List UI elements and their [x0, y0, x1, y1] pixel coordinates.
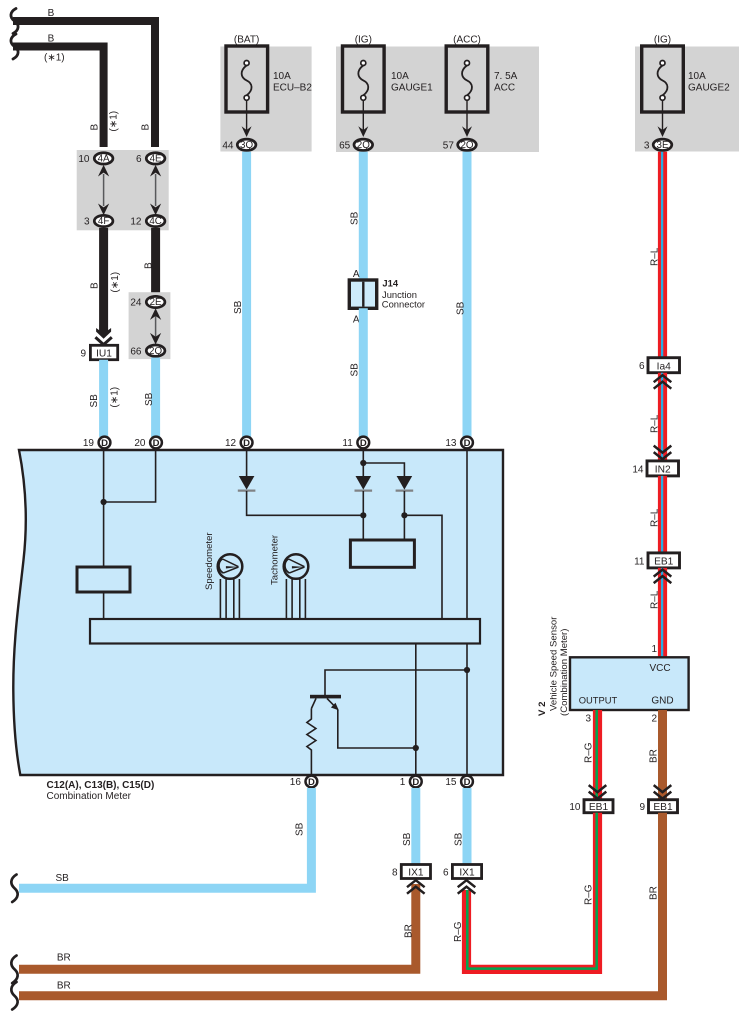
svg-text:3E: 3E	[657, 140, 669, 151]
svg-text:IU1: IU1	[96, 349, 112, 360]
svg-text:BR: BR	[404, 924, 415, 938]
svg-text:11: 11	[342, 438, 353, 449]
svg-text:EB1: EB1	[653, 802, 673, 813]
svg-text:SB: SB	[233, 300, 244, 314]
svg-text:6: 6	[136, 154, 142, 165]
svg-text:BR: BR	[57, 981, 71, 992]
svg-text:BR: BR	[649, 886, 660, 900]
svg-text:2Q: 2Q	[460, 140, 473, 151]
svg-text:3: 3	[644, 140, 650, 151]
svg-text:14: 14	[632, 464, 644, 475]
svg-text:20: 20	[134, 438, 146, 449]
svg-text:(IG): (IG)	[654, 35, 671, 46]
svg-text:R–L: R–L	[650, 414, 661, 433]
svg-text:4A: 4A	[98, 154, 110, 165]
svg-text:Speedometer: Speedometer	[204, 532, 215, 590]
svg-text:15: 15	[445, 777, 457, 788]
svg-text:SB: SB	[295, 822, 306, 836]
svg-text:4C: 4C	[149, 216, 162, 227]
svg-text:13: 13	[445, 438, 457, 449]
svg-text:2: 2	[651, 714, 657, 725]
svg-text:16: 16	[290, 777, 302, 788]
svg-text:R–L: R–L	[650, 508, 661, 527]
svg-text:Combination Meter: Combination Meter	[47, 791, 132, 802]
svg-text:(ACC): (ACC)	[453, 35, 481, 46]
svg-text:EB1: EB1	[589, 802, 609, 813]
svg-text:(∗1): (∗1)	[110, 387, 121, 408]
svg-text:SB: SB	[89, 394, 100, 408]
svg-text:9: 9	[639, 802, 645, 813]
svg-text:12: 12	[225, 438, 237, 449]
svg-text:(∗1): (∗1)	[44, 53, 65, 64]
svg-text:IN2: IN2	[655, 465, 671, 476]
svg-text:7. 5A: 7. 5A	[494, 71, 518, 82]
svg-text:B: B	[90, 124, 101, 131]
svg-text:B: B	[90, 282, 101, 289]
svg-text:10A: 10A	[391, 71, 409, 82]
svg-text:SB: SB	[144, 392, 155, 406]
svg-text:3: 3	[84, 217, 90, 228]
svg-text:44: 44	[222, 140, 234, 151]
svg-text:SB: SB	[56, 873, 70, 884]
svg-text:4E: 4E	[150, 154, 162, 165]
svg-text:BR: BR	[57, 953, 71, 964]
svg-text:GAUGE1: GAUGE1	[391, 83, 433, 94]
svg-text:(IG): (IG)	[355, 35, 372, 46]
svg-text:1: 1	[651, 644, 657, 655]
svg-text:SB: SB	[402, 832, 413, 846]
svg-text:Tachometer: Tachometer	[270, 534, 281, 585]
svg-text:VCC: VCC	[649, 663, 670, 674]
svg-text:GND: GND	[651, 696, 673, 707]
svg-text:R–G: R–G	[453, 921, 464, 942]
svg-text:B: B	[48, 34, 55, 45]
svg-text:4F: 4F	[98, 216, 109, 227]
svg-text:Connector: Connector	[382, 299, 425, 310]
svg-text:ECU–B2: ECU–B2	[273, 83, 312, 94]
svg-text:BR: BR	[649, 749, 660, 763]
svg-text:8: 8	[392, 867, 398, 878]
svg-text:B: B	[144, 262, 155, 269]
svg-text:R–L: R–L	[650, 247, 661, 266]
svg-text:10: 10	[569, 802, 581, 813]
svg-text:1: 1	[400, 777, 406, 788]
svg-text:66: 66	[130, 346, 142, 357]
svg-text:GAUGE2: GAUGE2	[688, 83, 730, 94]
svg-text:B: B	[141, 124, 152, 131]
svg-text:11: 11	[634, 556, 645, 567]
svg-text:OUTPUT: OUTPUT	[579, 695, 618, 706]
svg-text:2Q: 2Q	[149, 346, 162, 357]
svg-text:R–G: R–G	[584, 742, 595, 763]
svg-text:6: 6	[639, 361, 645, 372]
svg-text:IX1: IX1	[408, 868, 424, 879]
svg-text:6: 6	[443, 867, 449, 878]
svg-text:2E: 2E	[150, 297, 162, 308]
svg-text:V 2: V 2	[537, 702, 548, 716]
svg-text:IX1: IX1	[459, 868, 475, 879]
svg-text:SB: SB	[350, 211, 361, 225]
svg-text:19: 19	[83, 438, 95, 449]
svg-text:9: 9	[80, 348, 86, 359]
svg-text:(BAT): (BAT)	[234, 35, 259, 46]
svg-text:10: 10	[78, 154, 90, 165]
svg-text:24: 24	[130, 298, 142, 309]
svg-text:SB: SB	[454, 832, 465, 846]
svg-text:EB1: EB1	[654, 557, 674, 568]
svg-text:57: 57	[443, 140, 455, 151]
svg-text:10A: 10A	[688, 71, 706, 82]
svg-text:Vehicle Speed Sensor: Vehicle Speed Sensor	[549, 616, 560, 711]
svg-text:ACC: ACC	[494, 83, 515, 94]
svg-text:SB: SB	[456, 301, 467, 315]
svg-text:12: 12	[130, 217, 142, 228]
svg-text:65: 65	[339, 140, 351, 151]
svg-text:B: B	[48, 8, 55, 19]
svg-text:R–G: R–G	[584, 884, 595, 905]
svg-text:C12(A), C13(B), C15(D): C12(A), C13(B), C15(D)	[47, 780, 155, 791]
svg-text:R–L: R–L	[650, 590, 661, 609]
svg-text:J14: J14	[382, 278, 398, 289]
svg-text:(∗1): (∗1)	[110, 272, 121, 293]
svg-text:(Combination Meter): (Combination Meter)	[559, 629, 570, 716]
svg-text:Ia4: Ia4	[657, 361, 671, 372]
svg-text:SB: SB	[350, 363, 361, 377]
svg-text:A: A	[353, 315, 360, 326]
svg-text:2Q: 2Q	[357, 140, 370, 151]
svg-text:3: 3	[585, 714, 591, 725]
svg-text:(∗1): (∗1)	[109, 111, 120, 132]
svg-text:3Q: 3Q	[240, 140, 253, 151]
svg-text:10A: 10A	[273, 71, 291, 82]
